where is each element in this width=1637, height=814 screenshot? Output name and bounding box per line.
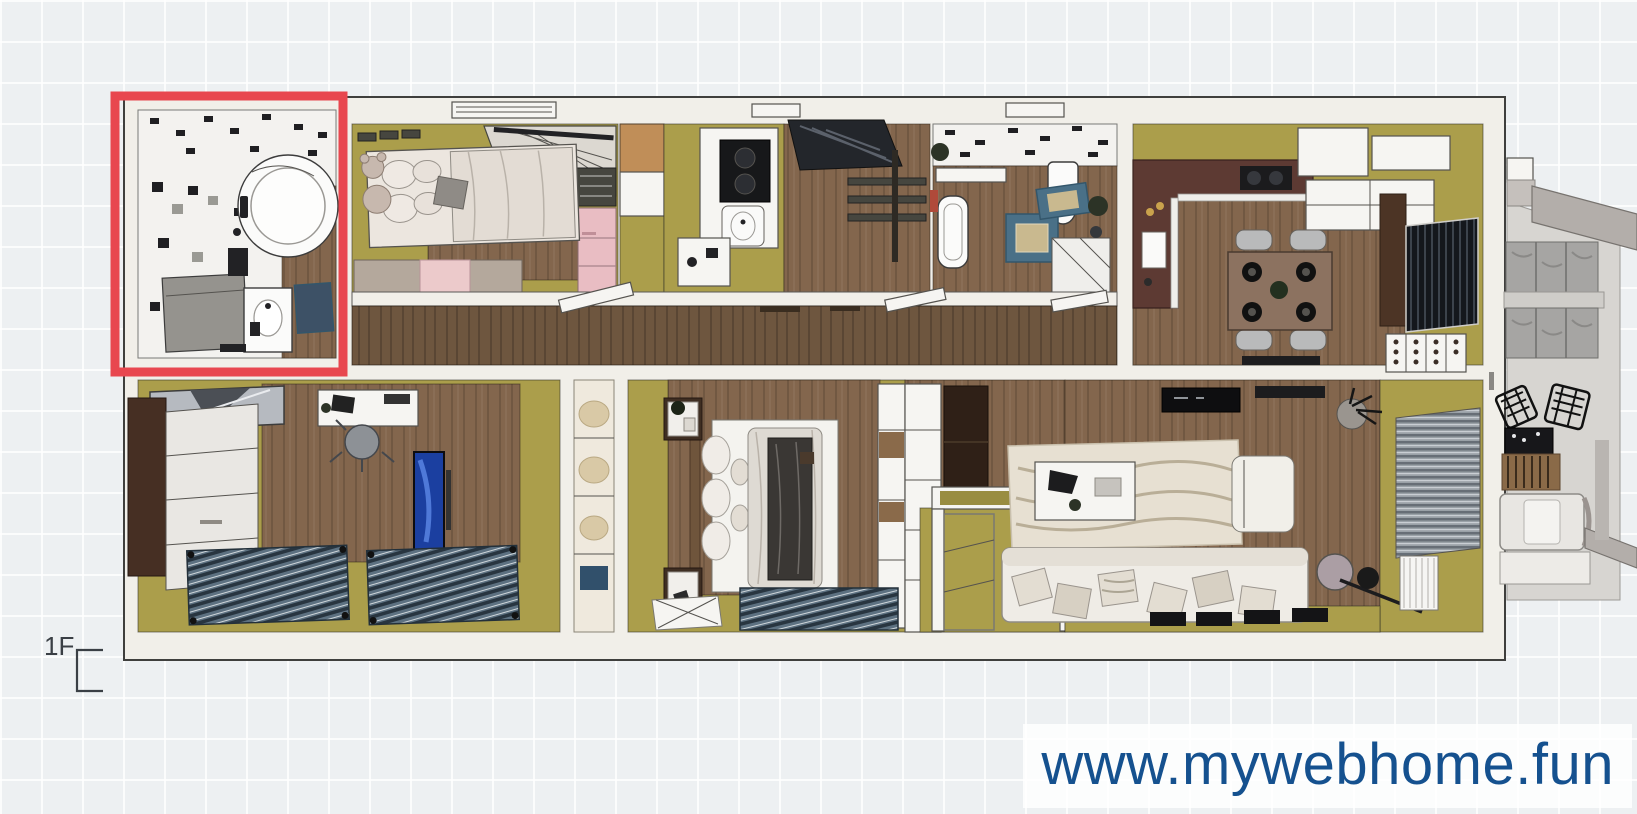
plant-small (671, 401, 685, 415)
bed-frame-slats-3 (740, 588, 898, 630)
room-kids-bedroom[interactable] (352, 124, 618, 298)
blue-rug-1 (1006, 214, 1058, 262)
toilet-cistern (228, 248, 248, 276)
bench-step (1500, 552, 1590, 584)
pantry-cabinet (620, 172, 664, 216)
radiator (1400, 556, 1438, 610)
tv-wall (1162, 388, 1240, 412)
desk (318, 390, 418, 426)
bed-frame-slats-2 (367, 545, 519, 624)
wall-strip (1595, 440, 1609, 540)
pantry-counter (620, 124, 664, 172)
cushion-shelf (1504, 242, 1604, 358)
room-bathroom-2[interactable] (930, 124, 1117, 298)
kitchen-cabinets (700, 128, 778, 248)
chair (1290, 230, 1326, 250)
window-top-3 (1006, 103, 1064, 117)
soundbar (1255, 386, 1325, 398)
door-mat (1292, 608, 1328, 622)
bath-mat (294, 283, 333, 333)
threshold (760, 306, 800, 312)
white-mat (652, 596, 722, 630)
pillow (1053, 583, 1092, 618)
room-master-bedroom[interactable] (628, 380, 905, 632)
room-bathroom-main[interactable] (138, 110, 338, 358)
threshold (830, 306, 860, 311)
blue-box (580, 566, 608, 590)
master-bed (690, 420, 838, 592)
floor-plan-canvas: 1F (0, 0, 1637, 814)
vanity-sink (244, 288, 292, 352)
room-dining-kitchen[interactable] (1133, 124, 1483, 372)
plant-2 (1088, 196, 1108, 216)
wine-rack (1386, 334, 1466, 372)
room-balcony[interactable] (1495, 158, 1637, 600)
window-blinds-dark (788, 120, 902, 170)
window-blind-east (1406, 218, 1478, 332)
curtains (1396, 408, 1480, 558)
lounger (1500, 494, 1589, 550)
sink-2 (1142, 232, 1166, 268)
nightstand-top (664, 398, 702, 440)
red-towel (930, 190, 938, 212)
centerpiece (1270, 281, 1288, 299)
plant (931, 143, 949, 161)
bed-frame-slats-1 (187, 545, 349, 625)
door-mat (1196, 612, 1232, 626)
floor-selector[interactable]: 1F (44, 631, 103, 691)
chair (1236, 230, 1272, 250)
watermark-link[interactable]: www.mywebhome.fun (1023, 724, 1632, 808)
chair (1236, 330, 1272, 350)
blanket (580, 516, 608, 540)
coffee-table (1035, 462, 1135, 520)
gray-cushion (434, 176, 468, 209)
room-corridor[interactable] (352, 282, 1117, 365)
room-pantry[interactable] (620, 124, 664, 298)
pillow (1098, 570, 1138, 607)
floor-notch (800, 452, 814, 464)
door-handle (1489, 372, 1494, 390)
beam-block (1507, 180, 1535, 206)
laptop (331, 395, 355, 414)
floor-bracket-icon (77, 650, 103, 691)
bathtub (238, 155, 338, 257)
door-mat (1244, 610, 1280, 624)
blanket (579, 401, 609, 427)
room-bedroom-left[interactable] (128, 380, 560, 632)
slatted-crate (1502, 454, 1560, 490)
window-top-2 (752, 104, 800, 117)
floor-plan-viewer: { "app": { "view": "floor-plan-top-view"… (0, 0, 1637, 814)
room-kitchen[interactable] (664, 120, 930, 298)
floor-vent (1242, 356, 1320, 365)
chair (1290, 330, 1326, 350)
armchair (1232, 456, 1294, 532)
bathroom-dresser (162, 274, 248, 352)
vanity-counter (936, 168, 1006, 182)
door-mat (1150, 612, 1186, 626)
kids-bed (360, 144, 580, 247)
pink-wardrobe (578, 208, 616, 296)
floor-selector-label[interactable]: 1F (44, 631, 74, 661)
shelf-dark (576, 168, 616, 206)
blanket (579, 457, 609, 483)
room-closet[interactable] (574, 380, 614, 632)
watermark-text: www.mywebhome.fun (1041, 732, 1614, 797)
tray-table (1505, 428, 1553, 454)
wood-panel (1380, 194, 1406, 326)
headboard (690, 424, 700, 588)
kitchen-island (678, 238, 730, 286)
room-living[interactable] (1002, 380, 1483, 632)
window-top-1 (452, 102, 556, 118)
blue-rug-2 (1036, 183, 1090, 220)
